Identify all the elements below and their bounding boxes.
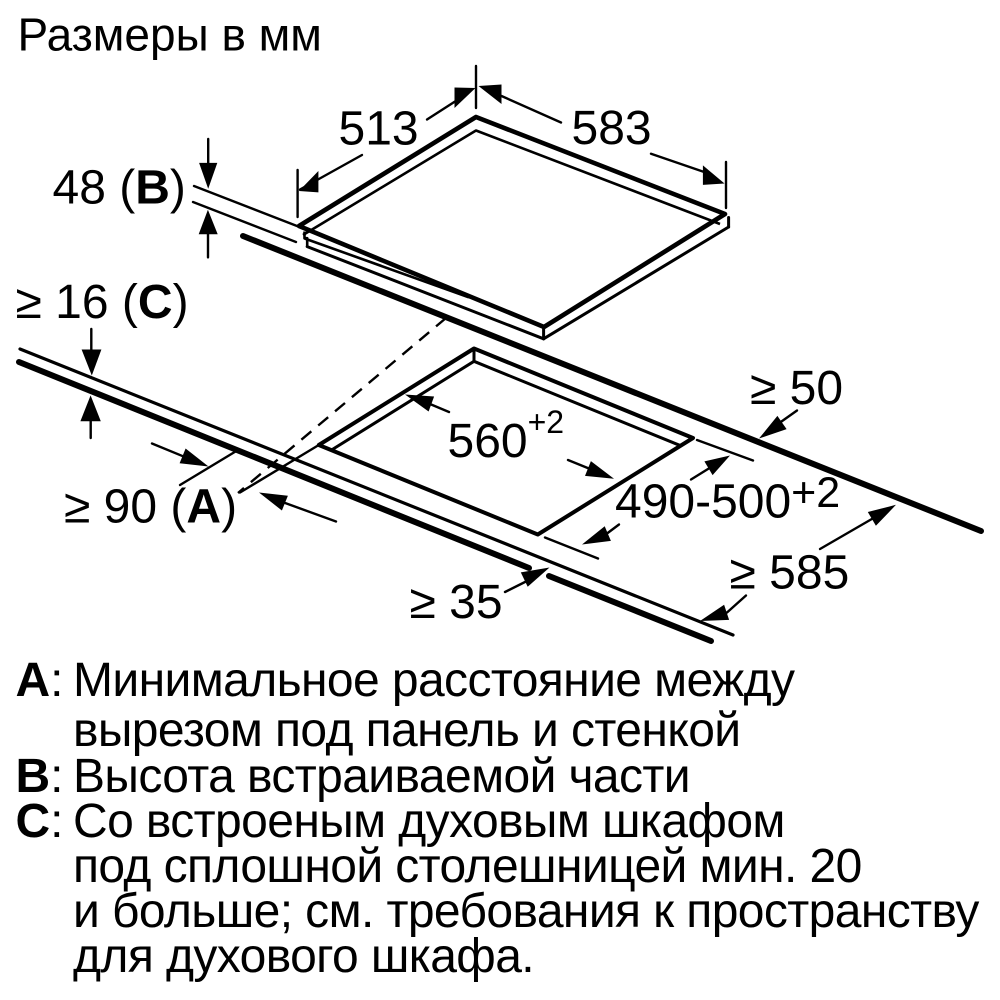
svg-text:513: 513 xyxy=(339,103,419,156)
svg-text:583: 583 xyxy=(572,102,652,155)
svg-text:≥ 585: ≥ 585 xyxy=(730,547,850,600)
svg-text:Размеры в мм: Размеры в мм xyxy=(18,9,322,61)
svg-text:490-500+2: 490-500+2 xyxy=(615,469,840,529)
svg-text:для духового шкафа.: для духового шкафа. xyxy=(73,930,534,983)
svg-text:≥ 35: ≥ 35 xyxy=(410,576,503,629)
svg-text:48 (B): 48 (B) xyxy=(53,162,186,215)
svg-text:≥ 16 (C): ≥ 16 (C) xyxy=(16,276,189,329)
svg-text:C:: C: xyxy=(16,795,64,848)
svg-text:A:: A: xyxy=(16,654,64,707)
svg-text:560+2: 560+2 xyxy=(448,404,565,468)
svg-text:≥ 90 (A): ≥ 90 (A) xyxy=(64,481,237,534)
svg-text:≥ 50: ≥ 50 xyxy=(750,362,843,415)
svg-text:Минимальное расстояние между: Минимальное расстояние между xyxy=(73,654,795,707)
